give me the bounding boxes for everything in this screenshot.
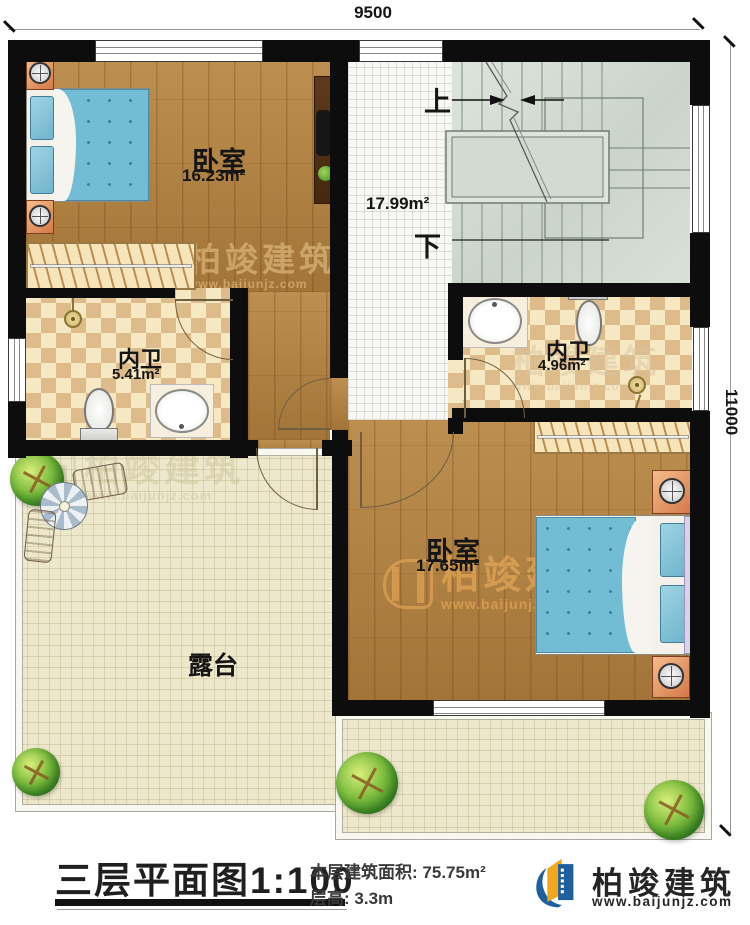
bed2-blanket — [536, 517, 636, 653]
window — [692, 105, 710, 233]
bed2-sheet — [622, 517, 652, 653]
company-logo-icon — [532, 854, 586, 912]
room-area-bedroom2: 17.65m² — [416, 556, 479, 576]
room-area-hall: 17.99m² — [366, 194, 429, 214]
story-height-label: 层高: — [310, 889, 350, 908]
door-leaf — [316, 448, 318, 510]
wall-segment — [26, 288, 175, 298]
wall-segment — [332, 430, 348, 716]
dimension-line-top — [8, 29, 700, 30]
floor-door-threshold — [330, 378, 348, 430]
window — [95, 40, 263, 62]
wardrobe — [533, 420, 693, 454]
dimension-top-label: 9500 — [338, 3, 408, 23]
company-website: www.baijunjz.com — [592, 894, 733, 909]
bed2-pillow — [660, 523, 686, 577]
wall-segment — [452, 283, 695, 297]
toilet — [84, 388, 114, 432]
lamp-icon — [659, 478, 685, 504]
wall-segment — [8, 294, 26, 338]
story-height-value: 3.3m — [354, 889, 393, 908]
wall-segment — [605, 700, 692, 716]
bed1-pillow — [30, 146, 54, 194]
room-area-bath1: 5.41m² — [112, 366, 160, 383]
shower-head-icon — [628, 376, 646, 394]
room-area-bath2: 4.96m² — [538, 357, 586, 374]
shrub-icon — [12, 748, 60, 796]
dimension-tick — [3, 20, 15, 32]
bed1-pillow — [30, 96, 54, 140]
window — [433, 700, 605, 716]
wall-segment — [8, 40, 26, 294]
wall-segment — [443, 40, 695, 62]
wardrobe — [26, 242, 196, 290]
dimension-right-label: 11000 — [721, 381, 741, 443]
wall-segment — [690, 40, 710, 105]
floor-plan-page: 9500 11000 — [0, 0, 750, 925]
floor-area-text: 本层建筑面积: 75.75m² — [310, 858, 486, 883]
shrub-icon — [336, 752, 398, 814]
wall-segment — [15, 440, 258, 456]
stair-up-label: 上 — [424, 80, 451, 119]
staircase-drawing — [452, 62, 690, 283]
room-label-terrace: 露台 — [188, 646, 238, 682]
window — [693, 327, 709, 411]
door-leaf — [360, 432, 362, 508]
floor-area-label: 本层建筑面积: — [310, 863, 418, 882]
wall-segment — [690, 233, 710, 327]
room-area-bedroom1: 16.23m² — [182, 166, 245, 186]
window — [8, 338, 26, 402]
shower-head-icon — [64, 310, 82, 328]
stair-up-arrow — [490, 95, 505, 105]
floor-area-value: 75.75m² — [422, 863, 485, 882]
wall-segment — [26, 40, 95, 62]
dimension-tick — [692, 17, 704, 29]
wall-segment — [448, 283, 463, 360]
wall-segment — [330, 62, 348, 378]
wall-segment — [690, 411, 710, 718]
lamp-icon — [29, 62, 51, 84]
title-underline-thin — [57, 909, 347, 910]
wall-segment — [348, 700, 433, 716]
window — [359, 40, 443, 62]
stair-down-label: 下 — [414, 225, 441, 264]
door-leaf — [278, 428, 330, 430]
story-height-text: 层高: 3.3m — [310, 884, 393, 909]
bed2-pillow — [660, 585, 686, 643]
door-leaf — [464, 358, 466, 418]
faucet-icon — [179, 424, 184, 429]
lamp-icon — [29, 205, 51, 227]
faucet-icon — [492, 302, 497, 307]
wall-segment — [322, 440, 352, 456]
door-leaf — [175, 299, 233, 301]
patio-lounger — [23, 509, 56, 564]
lamp-icon — [658, 663, 684, 689]
shrub-icon — [644, 780, 704, 840]
title-underline — [55, 899, 345, 906]
wall-segment — [263, 40, 359, 62]
